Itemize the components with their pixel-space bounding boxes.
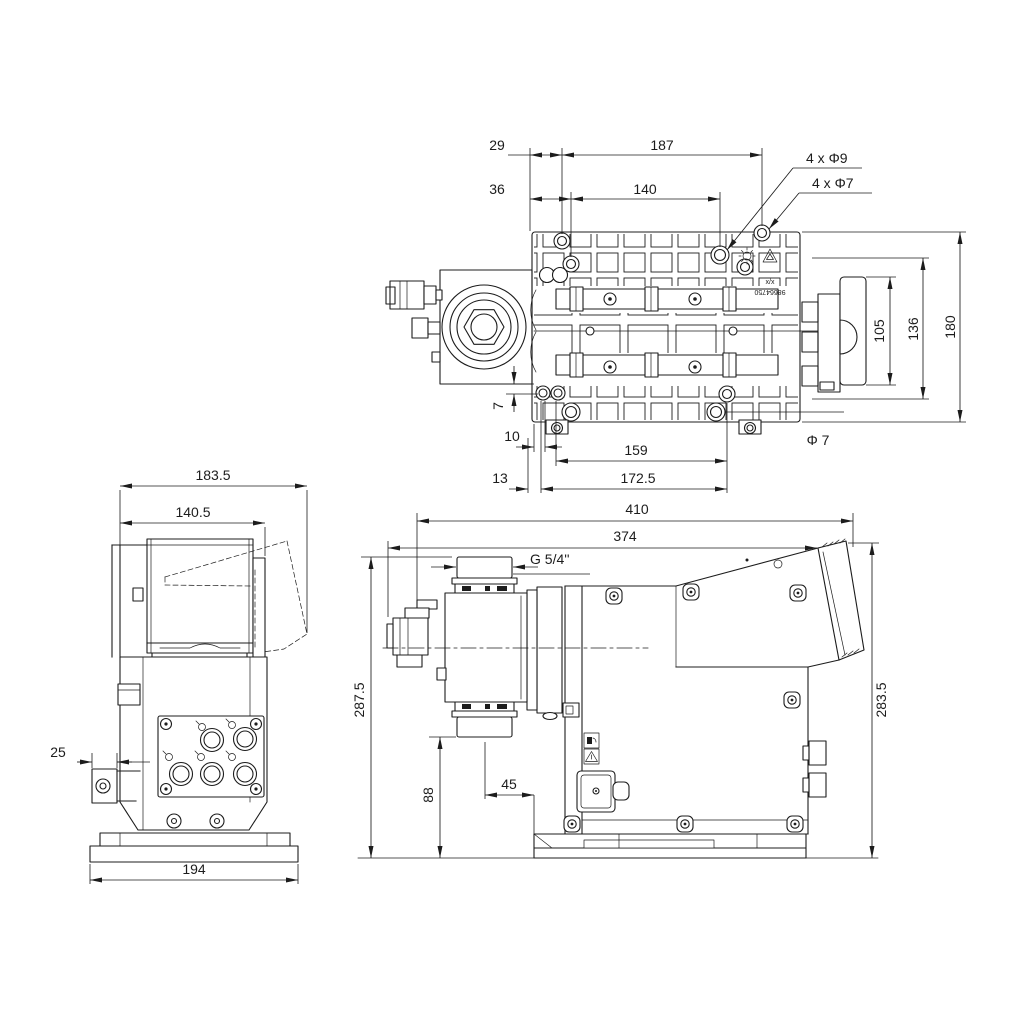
dim-4x-dia9: 4 x Φ9 [806,150,848,166]
dim-374: 374 [613,528,637,544]
technical-drawing-page: x/x 98664750 29 187 [0,0,1024,1024]
dim-287-5: 287.5 [351,682,367,717]
control-cube-top [802,277,866,392]
dim-187: 187 [650,137,674,153]
base-plate-side [534,834,806,858]
dim-7: 7 [490,402,506,410]
dim-105: 105 [871,319,887,343]
dim-29: 29 [489,137,505,153]
side-connectors [803,741,826,797]
dim-10: 10 [504,428,520,444]
dosing-head-side [383,557,648,737]
cable-gland-side [387,600,437,667]
dim-180: 180 [942,315,958,339]
dim-25: 25 [50,744,66,760]
rear-view: 183.5 140.5 25 194 [50,467,307,884]
dim-172-5: 172.5 [620,470,655,486]
base-plate-rear [90,833,298,862]
side-view: 410 374 287.5 G 5/4'' 88 45 283.5 [351,501,889,858]
control-panel-side [746,539,865,667]
pump-housing-side [563,539,864,834]
dim-136: 136 [905,317,921,341]
dim-dia7: Φ 7 [807,432,830,448]
dim-283-5: 283.5 [873,682,889,717]
dim-140: 140 [633,181,657,197]
dim-410: 410 [625,501,649,517]
dim-194: 194 [182,861,206,877]
plate-marking-line2: 98664750 [754,288,785,295]
vent-valve-top [412,318,440,338]
top-port [452,557,517,593]
dim-45: 45 [501,776,517,792]
connector-plate [158,716,264,797]
control-cube-rear [147,539,265,661]
dim-4x-dia7: 4 x Φ7 [812,175,854,191]
dim-140-5: 140.5 [175,504,210,520]
dim-159: 159 [624,442,648,458]
dosing-pump-dimensional-drawing: x/x 98664750 29 187 [0,0,1024,1024]
mounting-plate: x/x 98664750 [531,225,846,434]
warning-label [584,733,599,764]
dim-36: 36 [489,181,505,197]
mounting-rail-lower [556,353,778,377]
mains-socket [577,771,629,812]
top-view: x/x 98664750 29 187 [386,137,966,493]
plate-marking-line1: x/x [766,279,775,286]
dim-thread: G 5/4'' [530,551,570,567]
dim-88: 88 [420,787,436,803]
dim-183-5: 183.5 [195,467,230,483]
pump-head-top [386,270,532,384]
dim-13: 13 [492,470,508,486]
bottom-port [452,702,517,737]
mounting-rail-upper [556,287,778,311]
cable-gland-top [386,281,442,309]
